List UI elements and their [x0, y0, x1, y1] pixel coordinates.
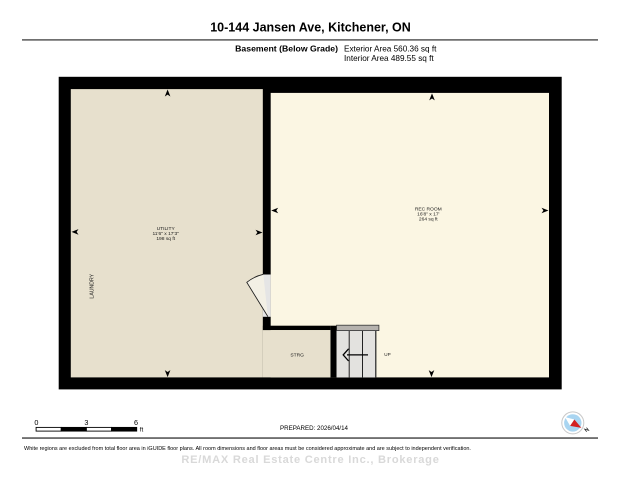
svg-text:UP: UP	[384, 352, 390, 357]
svg-text:White regions are excluded fro: White regions are excluded from total fl…	[24, 446, 471, 452]
svg-text:264 sq ft: 264 sq ft	[419, 216, 438, 222]
svg-text:0: 0	[34, 418, 38, 427]
svg-text:10-144 Jansen Ave, Kitchener,: 10-144 Jansen Ave, Kitchener, ON	[210, 20, 411, 34]
svg-text:6: 6	[134, 418, 138, 427]
svg-text:Basement (Below Grade): Basement (Below Grade)	[235, 43, 338, 53]
svg-text:ft: ft	[140, 427, 144, 434]
svg-text:PREPARED: 2026/04/14: PREPARED: 2026/04/14	[280, 425, 349, 432]
svg-text:Interior Area 489.55 sq ft: Interior Area 489.55 sq ft	[344, 54, 434, 63]
svg-text:LAUNDRY: LAUNDRY	[90, 273, 96, 298]
svg-text:Exterior Area 560.36 sq ft: Exterior Area 560.36 sq ft	[344, 44, 437, 53]
svg-text:198 sq ft: 198 sq ft	[156, 236, 175, 242]
svg-text:STRG: STRG	[290, 352, 304, 358]
svg-text:3: 3	[84, 418, 88, 427]
svg-text:RE/MAX Real Estate Centre Inc.: RE/MAX Real Estate Centre Inc., Brokerag…	[181, 454, 439, 466]
